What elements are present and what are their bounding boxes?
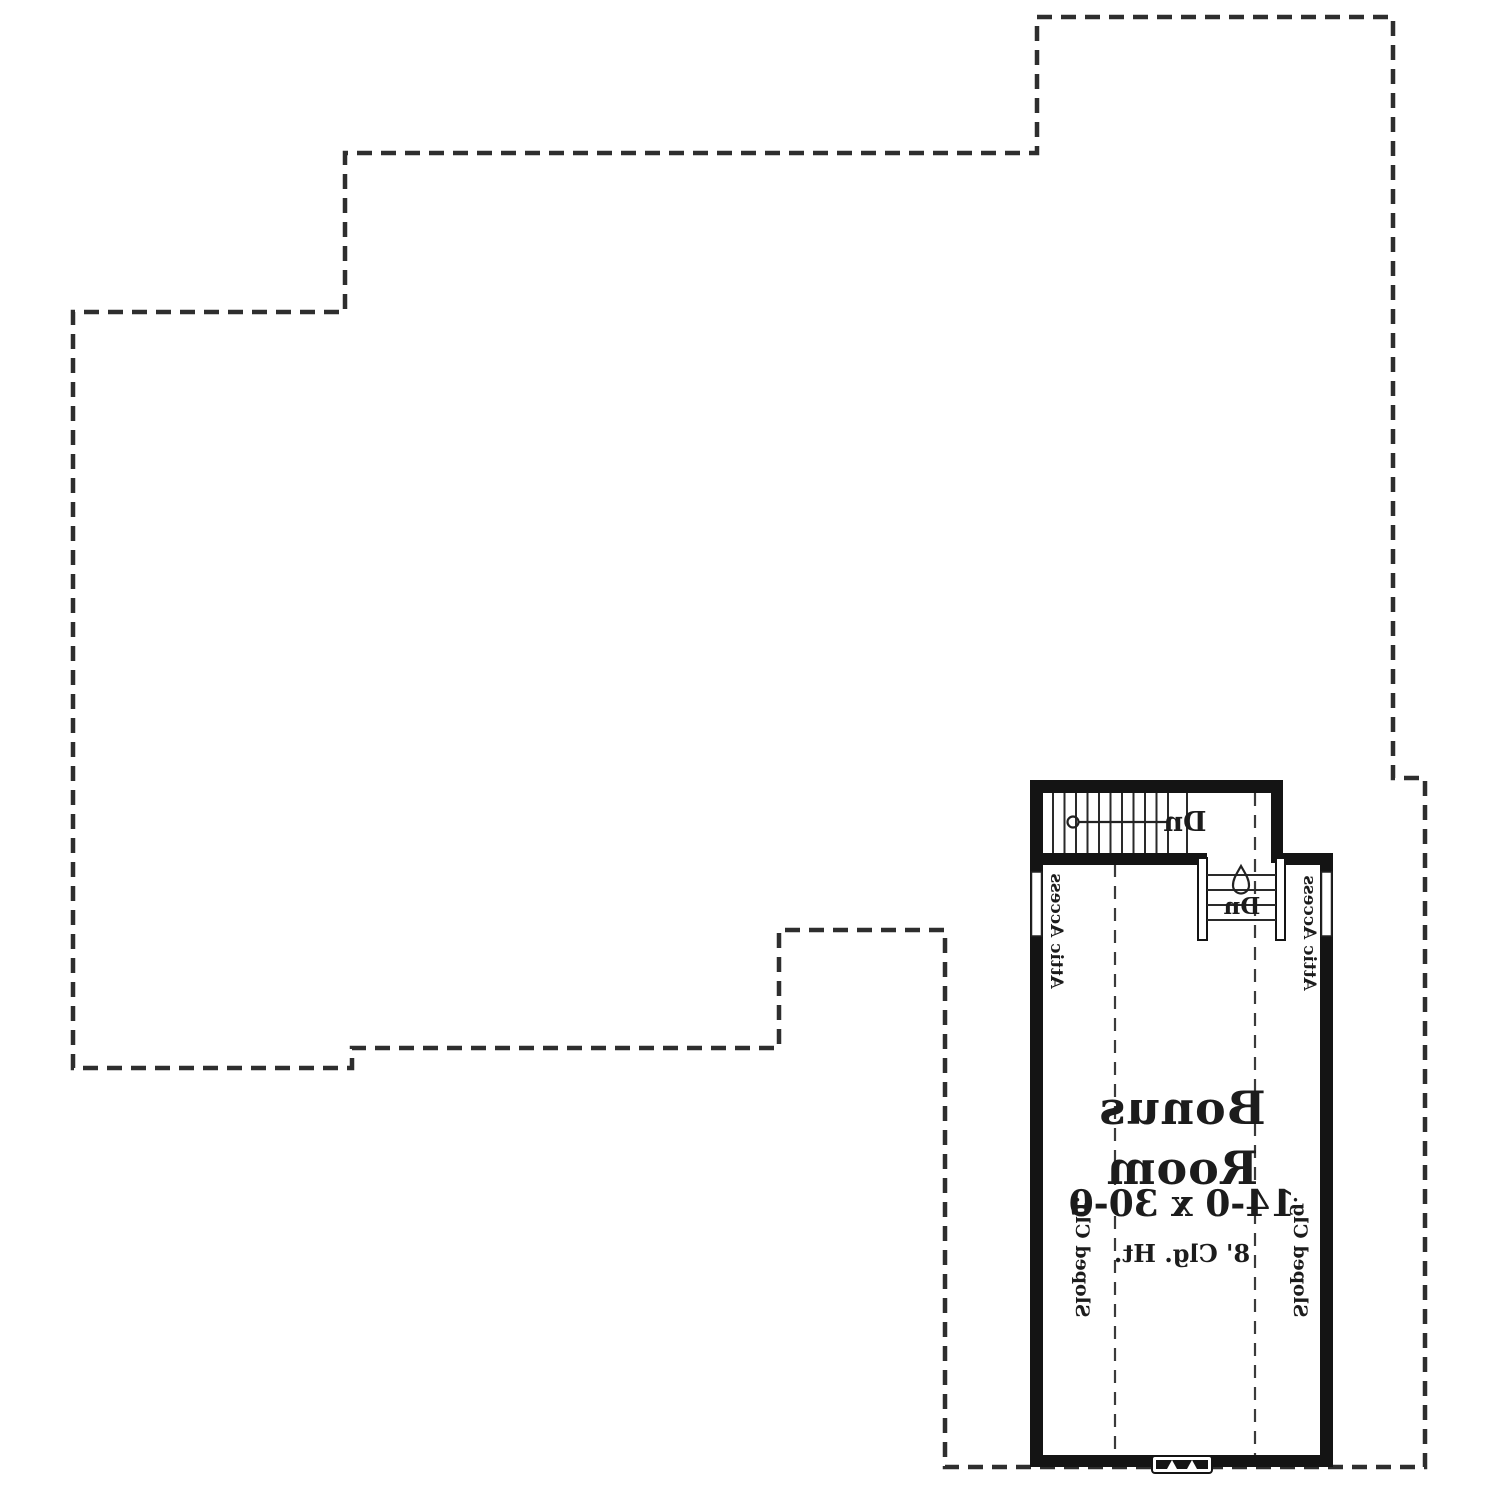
stair-down-label: Dn <box>1223 893 1260 920</box>
room-dimensions: 14-0 x 30-0 <box>1069 1183 1296 1225</box>
mirrored-plan-group: Bonus Room 14-0 x 30-0 8' Clg. Ht. Slope… <box>73 17 1425 1473</box>
ceiling-height-label: 8' Clg. Ht. <box>1114 1239 1250 1268</box>
floor-plan-svg: Bonus Room 14-0 x 30-0 8' Clg. Ht. Slope… <box>0 0 1500 1490</box>
stair-stringer <box>1276 858 1285 940</box>
stair-stringer <box>1198 858 1207 940</box>
floor-plan-canvas: Bonus Room 14-0 x 30-0 8' Clg. Ht. Slope… <box>0 0 1500 1490</box>
attic-access-opening <box>1032 872 1042 936</box>
sloped-ceiling-label: Sloped Clg. <box>1289 1196 1311 1317</box>
wall-stair-top <box>1030 780 1283 793</box>
wall-room-top-segment <box>1283 853 1333 865</box>
wall-room-side <box>1320 853 1333 1467</box>
stair-down-label: Dn <box>1163 807 1206 838</box>
attic-vent-icon <box>1152 1456 1212 1473</box>
sloped-ceiling-label: Sloped Clg. <box>1071 1196 1093 1317</box>
attic-access-label: Attic Access <box>1046 873 1066 989</box>
attic-access-opening <box>1322 872 1332 936</box>
room-name-line1: Bonus <box>1098 1081 1265 1135</box>
wall-stair-bottom <box>1030 853 1207 865</box>
attic-access-label: Attic Access <box>1299 875 1319 991</box>
wall-stair-side <box>1271 780 1283 863</box>
